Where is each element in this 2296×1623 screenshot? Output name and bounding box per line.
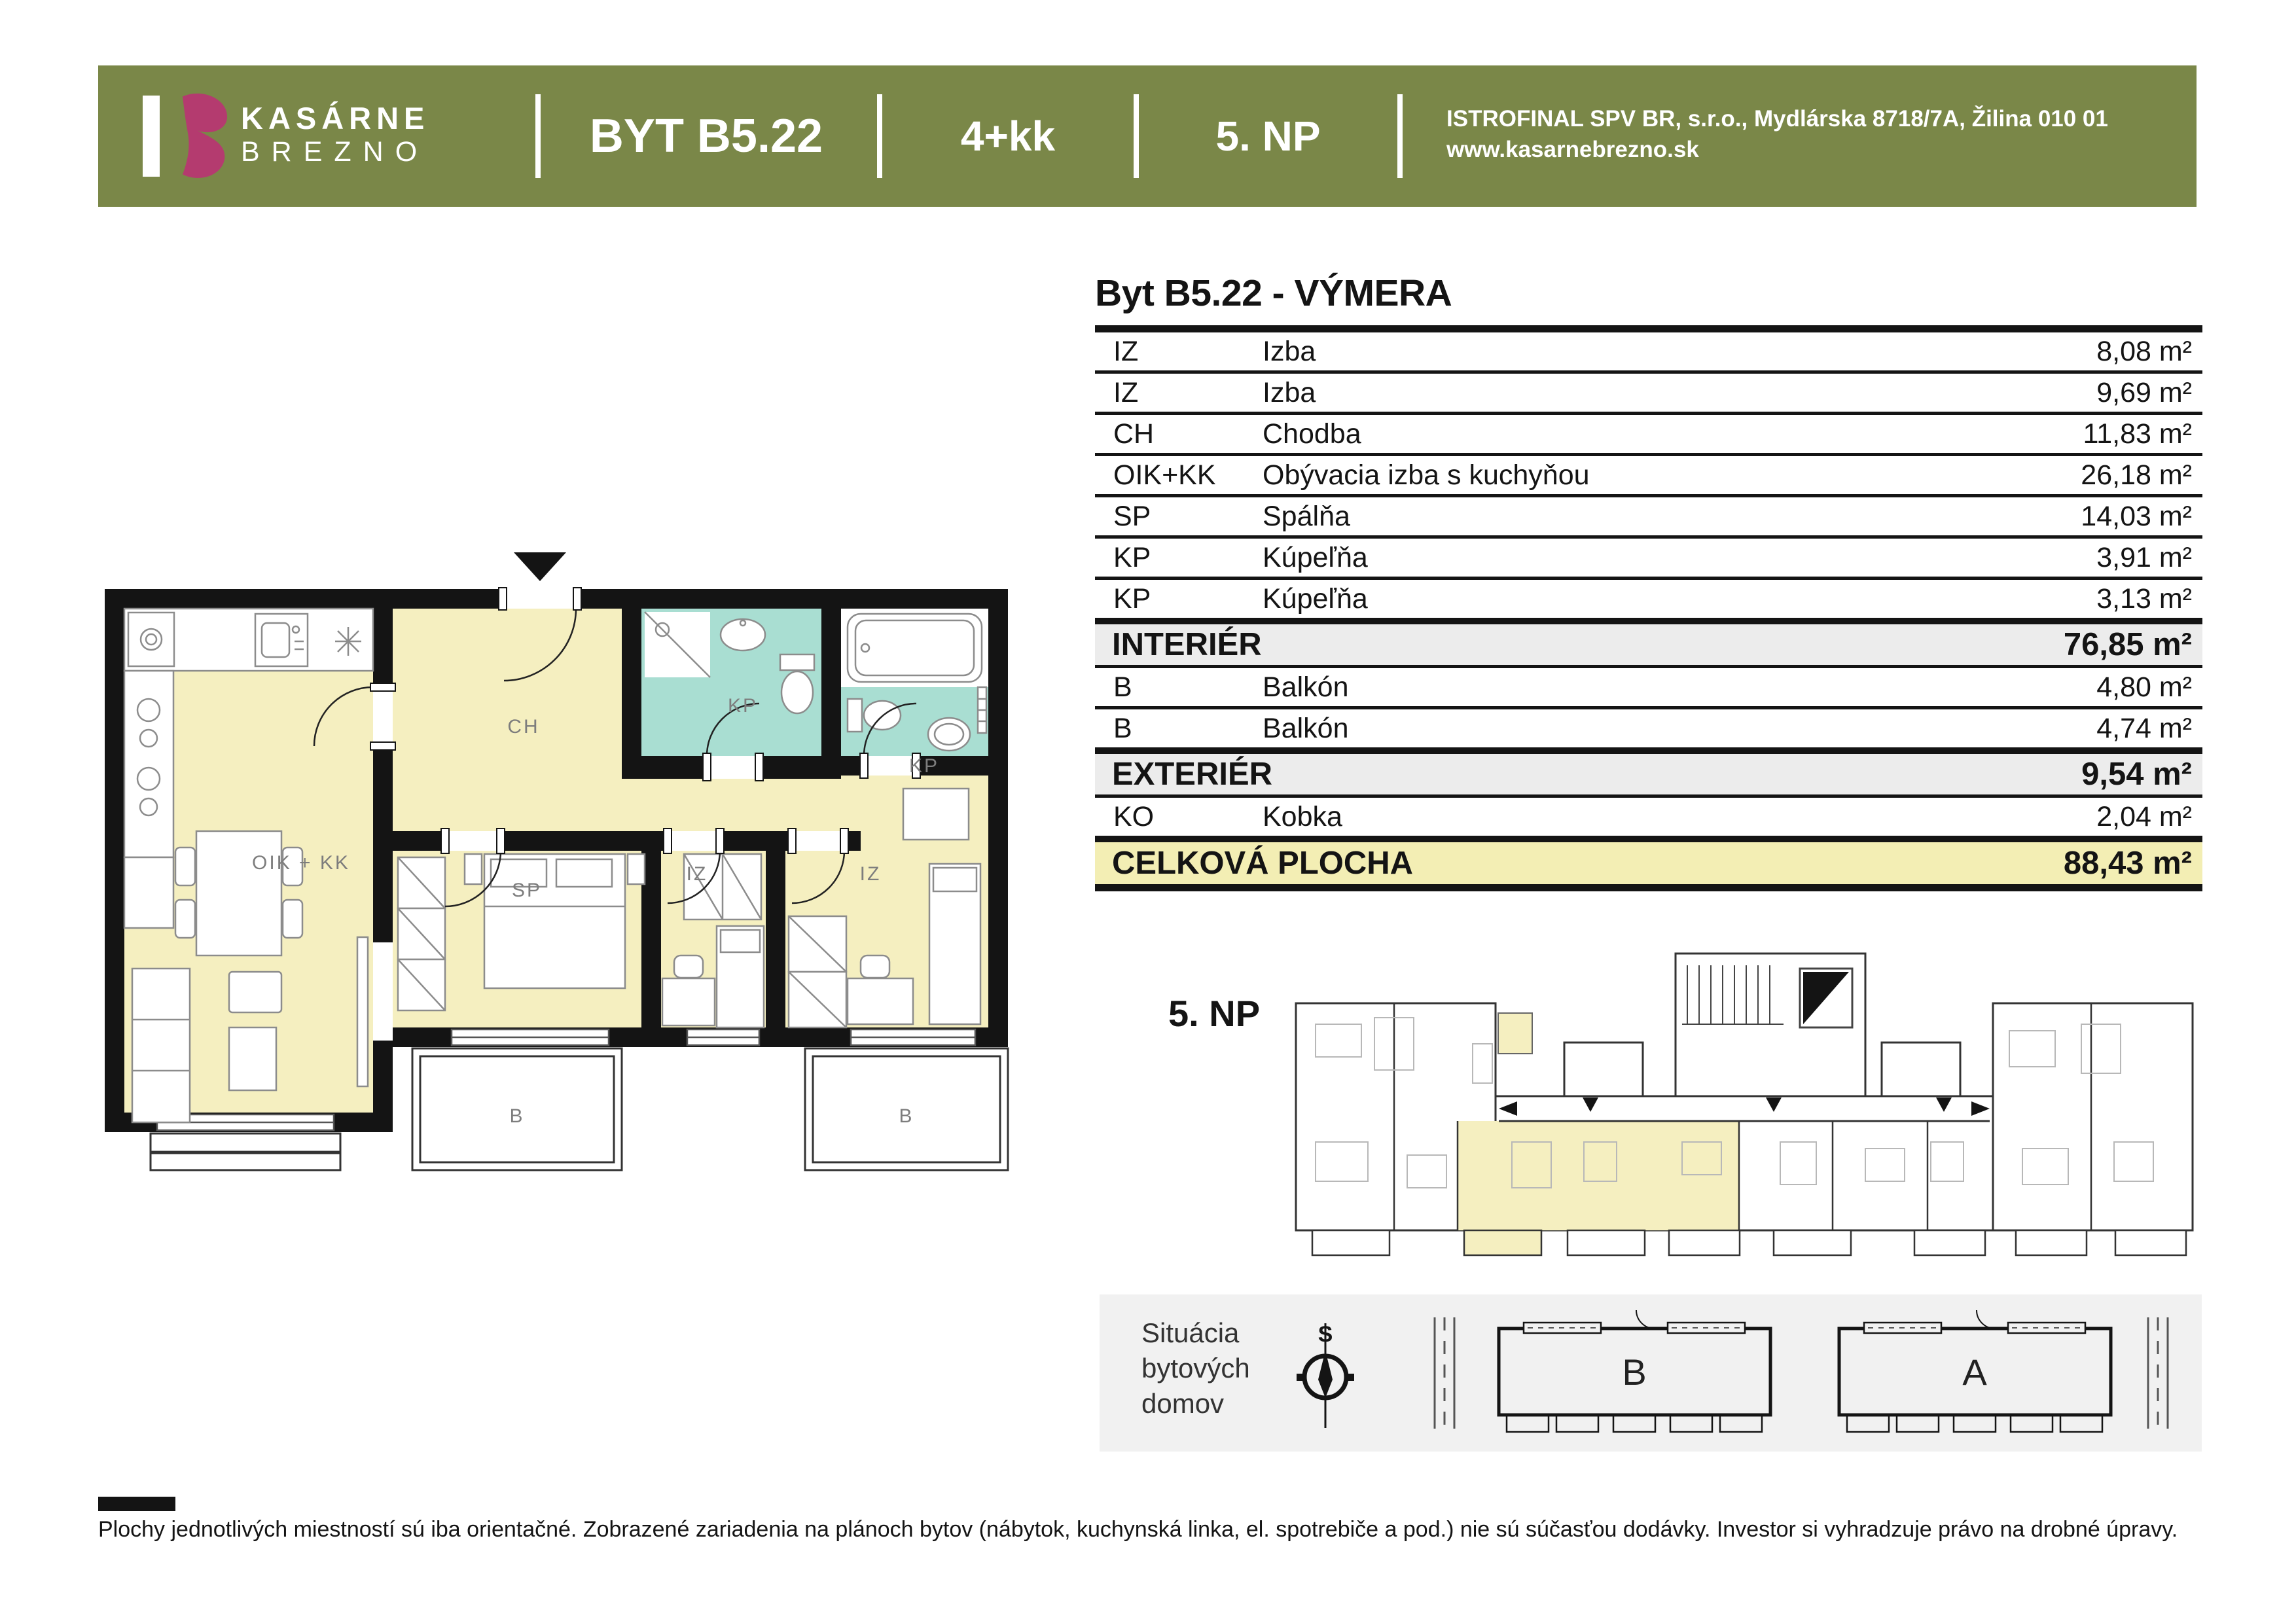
row-code: B (1095, 671, 1263, 704)
row-code: SP (1095, 501, 1263, 533)
table-row: KOKobka2,04 m² (1095, 798, 2202, 839)
header-divider (1134, 94, 1139, 178)
row-code: KO (1095, 801, 1263, 833)
row-area: 9,69 m² (2096, 377, 2202, 409)
area-table-rows: IZIzba8,08 m²IZIzba9,69 m²CHChodba11,83 … (1095, 332, 2202, 891)
table-row: SPSpálňa14,03 m² (1095, 497, 2202, 539)
floor-label: 5. NP (1139, 65, 1397, 207)
row-name: Kobka (1263, 801, 2096, 833)
table-row: INTERIÉR76,85 m² (1095, 621, 2202, 668)
table-row: OIK+KKObývacia izba s kuchyňou26,18 m² (1095, 456, 2202, 497)
row-code: IZ (1095, 336, 1263, 368)
row-name: Chodba (1263, 418, 2083, 450)
room-label-kp2: KP (909, 755, 939, 777)
table-row: CELKOVÁ PLOCHA88,43 m² (1095, 839, 2202, 891)
table-title-rule (1095, 325, 2202, 332)
area-table: Byt B5.22 - VÝMERA IZIzba8,08 m²IZIzba9,… (1095, 272, 2202, 891)
apartment-id: BYT B5.22 (541, 65, 872, 207)
row-name: Izba (1263, 377, 2096, 409)
row-area: 8,08 m² (2096, 336, 2202, 368)
row-name: Balkón (1263, 713, 2096, 745)
situation-building-a: A (1839, 1310, 2111, 1432)
row-name: Izba (1263, 336, 2096, 368)
table-row: EXTERIÉR9,54 m² (1095, 751, 2202, 798)
table-row: KPKúpeľňa3,13 m² (1095, 580, 2202, 621)
row-code: KP (1095, 542, 1263, 574)
situation-map: S B (1100, 1294, 2202, 1452)
row-area: 88,43 m² (2064, 845, 2202, 882)
row-area: 76,85 m² (2064, 626, 2202, 663)
company-info: ISTROFINAL SPV BR, s.r.o., Mydlárska 871… (1446, 103, 2108, 165)
table-row: IZIzba8,08 m² (1095, 332, 2202, 374)
row-code: OIK+KK (1095, 459, 1263, 491)
footer-marker (98, 1497, 175, 1511)
logo-text: KASÁRNE BREZNO (241, 102, 429, 169)
balcony-label-2: B (899, 1105, 914, 1127)
compass-icon: S (1297, 1322, 1354, 1428)
row-area: 3,91 m² (2096, 542, 2202, 574)
company-website: www.kasarnebrezno.sk (1446, 134, 2108, 165)
floor-overview-plan (1276, 946, 2212, 1273)
overview-building-outline (1296, 954, 2193, 1230)
entrance-arrow-icon (514, 552, 566, 581)
brand-name-bottom: BREZNO (241, 135, 429, 169)
building-a-label: A (1962, 1351, 1987, 1393)
header-divider (1397, 94, 1403, 178)
row-code: IZ (1095, 377, 1263, 409)
row-name: Spálňa (1263, 501, 2081, 533)
row-name: Balkón (1263, 671, 2096, 704)
brand-name-top: KASÁRNE (241, 102, 429, 135)
row-name: CELKOVÁ PLOCHA (1095, 845, 2064, 882)
room-label-oik: OIK + KK (252, 852, 350, 874)
room-label-iz1: IZ (687, 863, 708, 885)
table-row: CHChodba11,83 m² (1095, 415, 2202, 456)
road-markings (1435, 1317, 2168, 1429)
row-area: 4,80 m² (2096, 671, 2202, 704)
room-label-sp: SP (512, 880, 542, 901)
row-area: 2,04 m² (2096, 801, 2202, 833)
overview-floor-label: 5. NP (1168, 992, 1260, 1035)
row-name: Kúpeľňa (1263, 542, 2096, 574)
header-divider (535, 94, 541, 178)
balcony-label-1: B (509, 1105, 524, 1127)
row-name: EXTERIÉR (1095, 756, 2081, 793)
row-code: CH (1095, 418, 1263, 450)
company-address: ISTROFINAL SPV BR, s.r.o., Mydlárska 871… (1446, 103, 2108, 134)
row-code: B (1095, 713, 1263, 745)
row-area: 14,03 m² (2081, 501, 2202, 533)
row-name: INTERIÉR (1095, 626, 2064, 663)
row-area: 4,74 m² (2096, 713, 2202, 745)
header-bar: KASÁRNE BREZNO BYT B5.22 4+kk 5. NP ISTR… (98, 65, 2197, 207)
building-b-label: B (1622, 1351, 1646, 1393)
logo-heart-icon (166, 89, 229, 182)
row-area: 3,13 m² (2096, 583, 2202, 615)
row-name: Obývacia izba s kuchyňou (1263, 459, 2081, 491)
footer-disclaimer: Plochy jednotlivých miestností sú iba or… (98, 1517, 2238, 1543)
room-label-ch: CH (507, 716, 539, 738)
row-name: Kúpeľňa (1263, 583, 2096, 615)
apartment-floor-plan: OIK + KK CH SP IZ IZ KP KP B B (98, 550, 1041, 1211)
situation-panel: Situácia bytových domov S (1100, 1294, 2202, 1452)
table-row: KPKúpeľňa3,91 m² (1095, 539, 2202, 580)
row-code: KP (1095, 583, 1263, 615)
row-area: 26,18 m² (2081, 459, 2202, 491)
logo-bar-shape (143, 96, 160, 177)
layout-type: 4+kk (882, 65, 1134, 207)
table-row: IZIzba9,69 m² (1095, 374, 2202, 415)
header-divider (877, 94, 882, 178)
row-area: 9,54 m² (2081, 756, 2202, 793)
table-row: BBalkón4,74 m² (1095, 709, 2202, 751)
room-label-kp1: KP (728, 695, 758, 717)
compass-letter: S (1318, 1322, 1333, 1347)
overview-balconies (1312, 1230, 2186, 1255)
page: KASÁRNE BREZNO BYT B5.22 4+kk 5. NP ISTR… (0, 0, 2296, 1623)
row-area: 11,83 m² (2083, 418, 2203, 450)
area-table-title: Byt B5.22 - VÝMERA (1095, 272, 2202, 315)
room-label-iz2: IZ (860, 863, 882, 885)
table-row: BBalkón4,80 m² (1095, 668, 2202, 709)
situation-building-b: B (1499, 1310, 1770, 1432)
